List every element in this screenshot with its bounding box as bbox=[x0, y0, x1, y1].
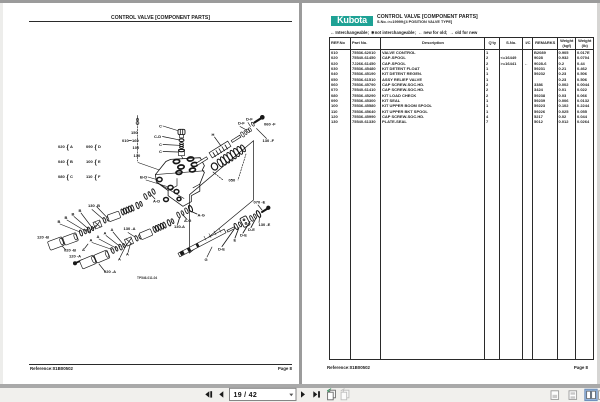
svg-text:040: 040 bbox=[58, 159, 65, 164]
svg-text:B-D: B-D bbox=[140, 174, 147, 179]
svg-text:H: H bbox=[212, 132, 215, 137]
svg-text:100: 100 bbox=[133, 145, 140, 150]
svg-text:E: E bbox=[98, 159, 101, 164]
svg-text:D-E: D-E bbox=[248, 227, 255, 232]
svg-text:C: C bbox=[70, 174, 73, 179]
svg-text:B: B bbox=[72, 212, 75, 217]
svg-text:070 -E: 070 -E bbox=[254, 200, 266, 205]
svg-text:G: G bbox=[205, 257, 208, 262]
svg-text:D-E: D-E bbox=[240, 233, 247, 238]
svg-text:C-D: C-D bbox=[154, 134, 161, 139]
svg-text:090: 090 bbox=[86, 144, 93, 149]
svg-text:D-F: D-F bbox=[238, 121, 245, 126]
svg-text:D-E: D-E bbox=[218, 247, 225, 252]
svg-text:B: B bbox=[58, 219, 61, 224]
svg-text:160: 160 bbox=[132, 138, 139, 143]
svg-text:C: C bbox=[159, 124, 162, 129]
svg-text:120 -A: 120 -A bbox=[69, 254, 81, 259]
svg-text:110: 110 bbox=[86, 174, 93, 179]
svg-text:A: A bbox=[126, 252, 129, 257]
svg-text:150: 150 bbox=[131, 130, 138, 135]
svg-text:A-G: A-G bbox=[184, 218, 191, 223]
svg-text:F: F bbox=[98, 174, 101, 179]
svg-text:A: A bbox=[97, 234, 100, 239]
svg-text:060 -F: 060 -F bbox=[264, 122, 276, 127]
svg-text:050: 050 bbox=[229, 178, 236, 183]
svg-text:D: D bbox=[98, 144, 101, 149]
svg-text:D-F: D-F bbox=[246, 117, 253, 122]
svg-text:B: B bbox=[79, 208, 82, 213]
svg-text:A: A bbox=[111, 227, 114, 232]
svg-text:A: A bbox=[104, 231, 107, 236]
svg-text:120 -B: 120 -B bbox=[37, 235, 49, 240]
svg-text:130 -B: 130 -B bbox=[88, 203, 100, 208]
svg-text:A-D: A-D bbox=[153, 199, 160, 204]
svg-text:B: B bbox=[70, 159, 73, 164]
svg-text:130 -E: 130 -E bbox=[259, 222, 271, 227]
svg-text:A: A bbox=[82, 247, 85, 252]
svg-text:130 -F: 130 -F bbox=[263, 138, 275, 143]
svg-text:B: B bbox=[65, 215, 68, 220]
svg-text:080: 080 bbox=[58, 174, 65, 179]
svg-text:100: 100 bbox=[86, 159, 93, 164]
svg-text:A-G: A-G bbox=[198, 213, 205, 218]
svg-text:C: C bbox=[159, 142, 162, 147]
svg-text:130: 130 bbox=[134, 153, 141, 158]
svg-text:020 -A: 020 -A bbox=[104, 269, 116, 274]
svg-text:19 / 42: 19 / 42 bbox=[234, 392, 258, 399]
svg-text:020: 020 bbox=[58, 144, 65, 149]
svg-text:TP546-011-04: TP546-011-04 bbox=[137, 276, 157, 280]
svg-text:130-A: 130-A bbox=[174, 224, 185, 229]
svg-text:C: C bbox=[159, 149, 162, 154]
svg-text:A: A bbox=[90, 238, 93, 243]
svg-text:130 -A: 130 -A bbox=[124, 226, 136, 231]
svg-text:010: 010 bbox=[122, 138, 129, 143]
svg-text:A: A bbox=[70, 144, 73, 149]
svg-text:A: A bbox=[118, 257, 121, 262]
